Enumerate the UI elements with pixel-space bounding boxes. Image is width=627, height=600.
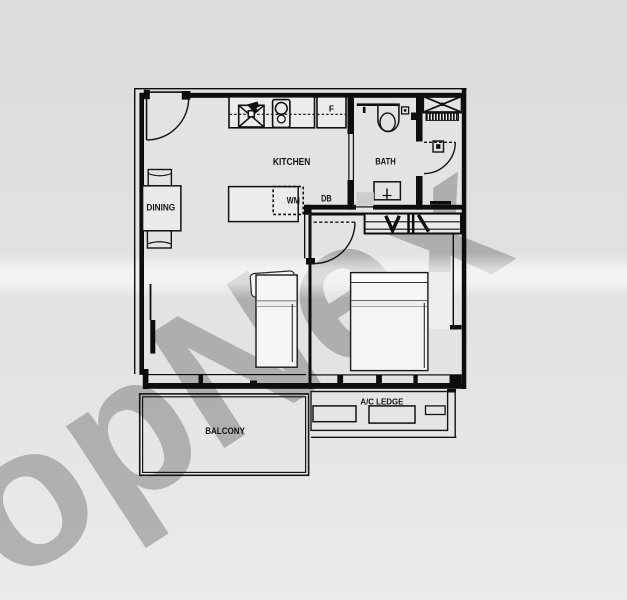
- svg-text:KITCHEN: KITCHEN: [273, 157, 311, 168]
- svg-text:BALCONY: BALCONY: [205, 425, 245, 436]
- svg-text:DB: DB: [321, 194, 332, 204]
- svg-text:DINING: DINING: [146, 203, 175, 213]
- svg-text:F: F: [329, 103, 334, 113]
- svg-text:BATH: BATH: [375, 157, 396, 167]
- svg-text:A/C LEDGE: A/C LEDGE: [360, 396, 403, 406]
- svg-text:WM: WM: [287, 196, 300, 206]
